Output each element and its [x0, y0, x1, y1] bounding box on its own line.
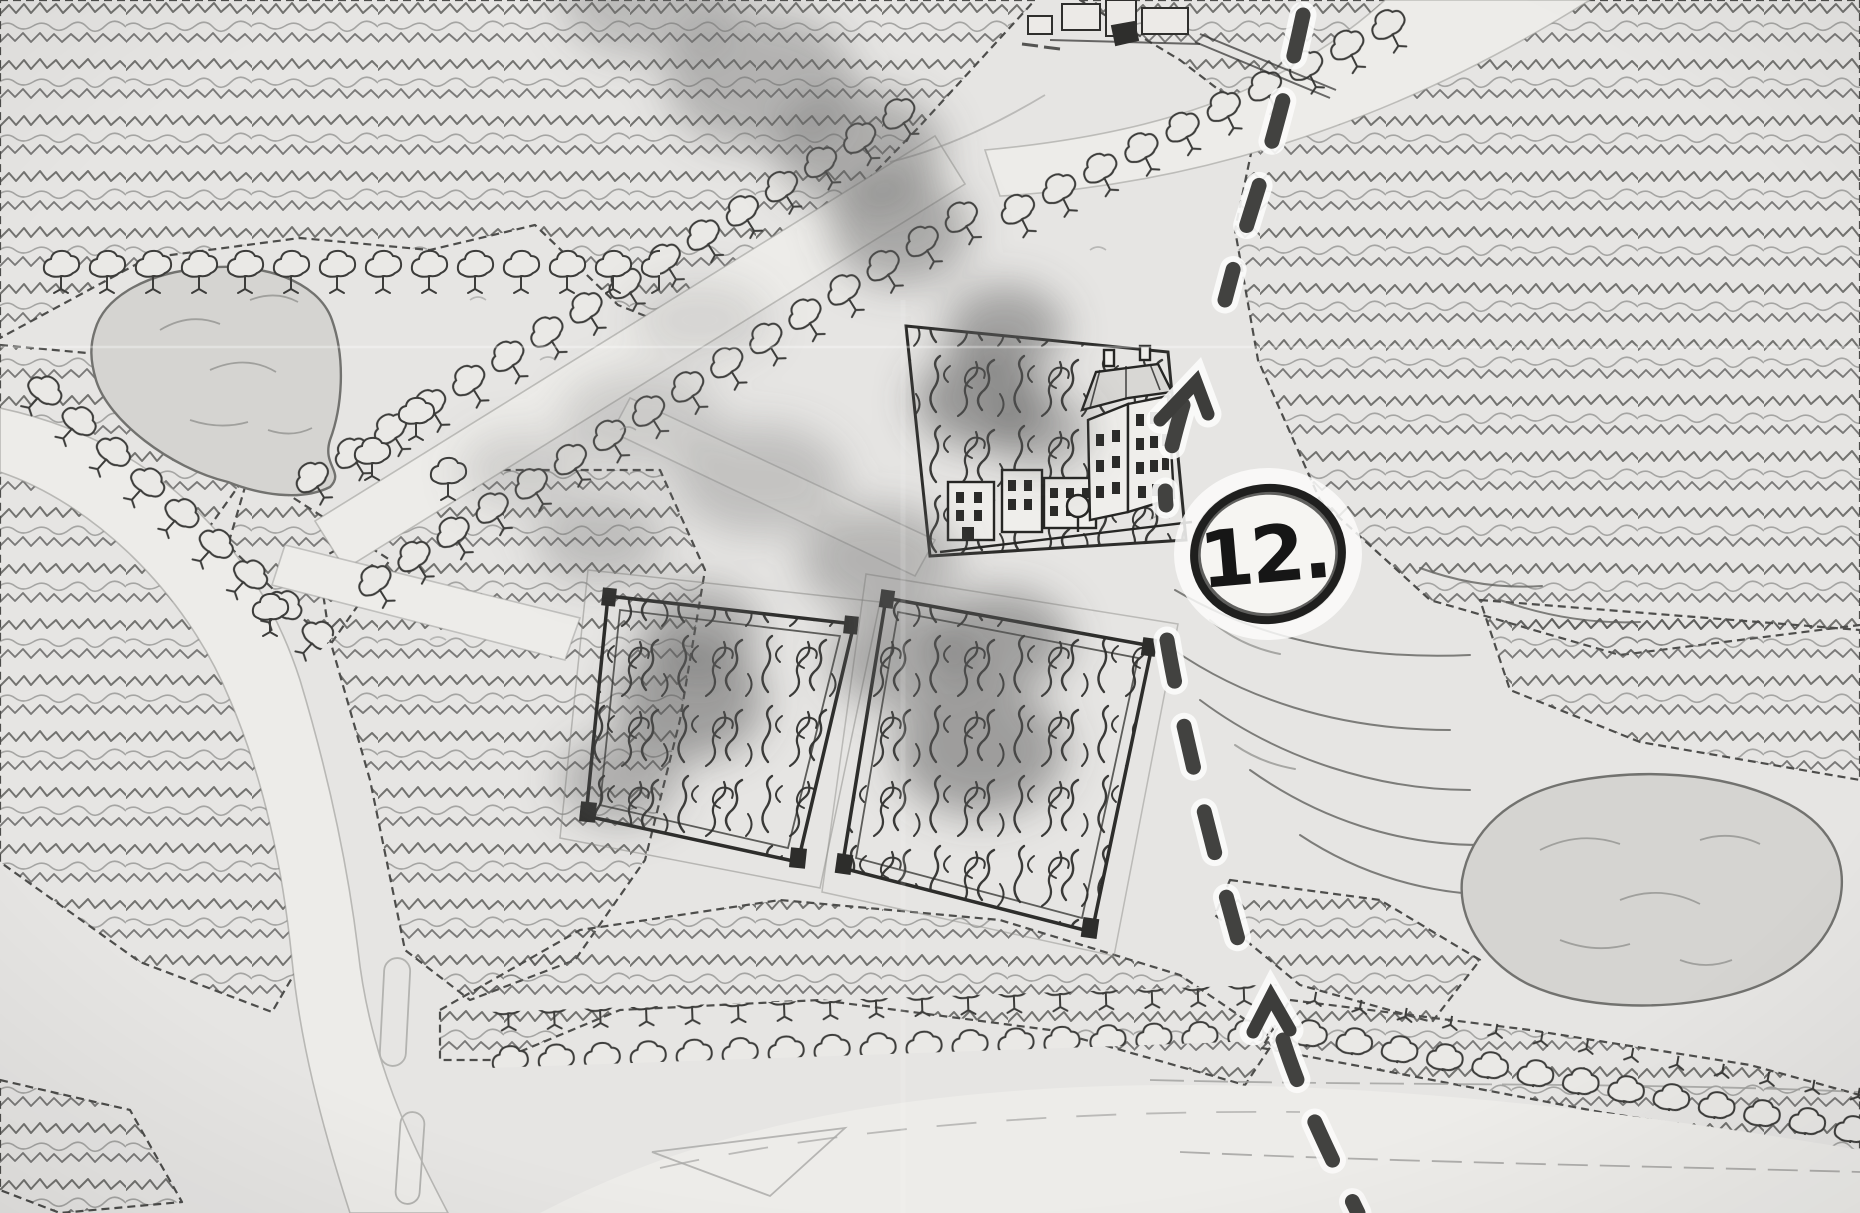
hand-drawn-map-screenshot: 12. — [0, 0, 1860, 1213]
map-illustration: 12. — [0, 0, 1860, 1213]
vignette-overlay — [0, 0, 1860, 1213]
